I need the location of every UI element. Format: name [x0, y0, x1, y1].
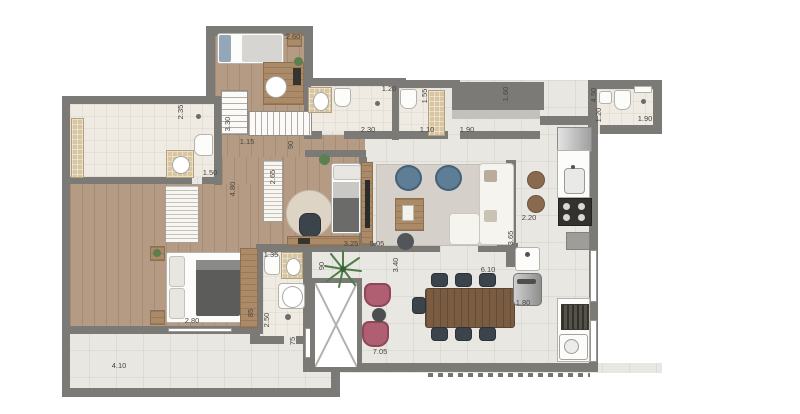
wall: [62, 388, 339, 397]
sofa-cushion: [484, 170, 497, 182]
shower-drain: [375, 101, 380, 106]
dim-label: 85: [247, 300, 255, 326]
bed-blanket-fold: [196, 260, 240, 270]
table-object: [402, 205, 414, 221]
burner: [578, 214, 585, 221]
sink: [172, 156, 190, 174]
shelf: [634, 86, 652, 93]
dim-label: 4.10: [106, 362, 132, 370]
nightstand: [150, 310, 165, 325]
x-cross-icon: [315, 283, 357, 367]
wall: [206, 26, 215, 104]
burner: [578, 203, 585, 210]
dim-label: 1.10: [414, 126, 440, 134]
dining-chair: [479, 273, 496, 287]
dim-label: 1.35: [258, 251, 284, 259]
staircase: [248, 111, 312, 136]
bed-pillow: [333, 165, 361, 180]
bed-blanket: [242, 35, 282, 62]
desk-chair: [265, 76, 287, 98]
window: [590, 320, 597, 362]
sofa-cushion: [484, 210, 497, 222]
faucet: [525, 252, 530, 257]
dim-label: 2.20: [516, 214, 542, 222]
floor-plan: 2.60 2.35 3.30 1.15 90 1.50 4.80 2.65 1.…: [0, 0, 800, 414]
dim-label: 1.20: [376, 85, 402, 93]
dim-label: 1.20: [595, 102, 603, 128]
wall: [305, 150, 366, 157]
wall: [355, 363, 598, 372]
palm-plant: [322, 248, 364, 290]
shower-head: [285, 314, 291, 320]
bar-stool: [527, 171, 545, 189]
prep-sink: [515, 247, 540, 271]
dim-label: 90: [318, 253, 326, 279]
dim-label: 4.80: [229, 176, 237, 202]
outside-area: [662, 80, 800, 134]
toilet: [194, 134, 213, 156]
dim-label: 3.25: [338, 240, 364, 248]
dim-label: 1.50: [197, 169, 223, 177]
dim-label: 1.80: [510, 299, 536, 307]
dim-label: 7.05: [367, 348, 393, 356]
laptop: [298, 238, 310, 244]
shower-head: [196, 114, 201, 119]
dim-label: 1.90: [454, 126, 480, 134]
outside-area: [0, 96, 62, 414]
burner: [563, 214, 570, 221]
projection-dashes: [428, 373, 590, 377]
pouf: [397, 233, 414, 250]
entry-wall-mass: [452, 82, 544, 110]
plant: [294, 57, 303, 66]
dining-chair: [431, 273, 448, 287]
desk-chair: [299, 213, 321, 237]
dim-label: 1.60: [502, 81, 510, 107]
grill-lid: [517, 279, 536, 284]
wall: [398, 80, 460, 88]
outside-area: [598, 134, 800, 363]
wall: [331, 372, 340, 397]
wall: [70, 177, 192, 184]
dim-label: 2.35: [177, 99, 185, 125]
shower-head: [641, 99, 646, 104]
outside-area: [0, 397, 800, 414]
sink: [313, 92, 329, 111]
toilet: [334, 88, 351, 107]
bar-stool: [527, 195, 545, 213]
burner: [563, 203, 570, 210]
dining-table: [425, 288, 515, 328]
bed-pillow: [219, 35, 231, 62]
dining-chair: [412, 297, 426, 314]
dim-label: 3.30: [224, 111, 232, 137]
dining-chair: [479, 327, 496, 341]
cooktop: [558, 198, 592, 226]
side-table: [372, 308, 386, 322]
lounge-chair: [362, 321, 389, 347]
tv: [365, 180, 370, 228]
dim-label: 1.55: [421, 83, 429, 109]
dim-label: 2.80: [179, 317, 205, 325]
lounge-chair: [364, 283, 391, 307]
wardrobe: [165, 185, 199, 243]
wall: [600, 125, 662, 134]
tiled-wall-strip: [71, 118, 84, 178]
dim-label: 5.05: [364, 240, 390, 248]
tub-basin: [564, 339, 579, 354]
bathtub-basin: [282, 286, 303, 308]
plant: [319, 154, 330, 165]
wall: [202, 177, 214, 184]
armchair: [435, 165, 462, 191]
dim-label: 2.65: [269, 164, 277, 190]
outside-area: [313, 0, 800, 80]
armchair: [395, 165, 422, 191]
toilet: [400, 89, 417, 109]
monitor: [293, 68, 301, 85]
toilet: [614, 90, 631, 110]
dining-chair: [431, 327, 448, 341]
sofa-chaise: [449, 213, 480, 245]
entry-ledge: [452, 110, 540, 119]
dim-label: 75: [289, 328, 297, 354]
outside-area: [0, 0, 206, 96]
fridge: [557, 127, 592, 152]
bed-blanket: [333, 198, 359, 232]
plant: [153, 249, 161, 257]
bed-pillow: [169, 256, 185, 287]
dim-label: 2.30: [355, 126, 381, 134]
wall: [258, 336, 284, 344]
dim-label: 2.50: [263, 307, 271, 333]
dim-label: 1.15: [234, 138, 260, 146]
dim-label: 3.40: [392, 252, 400, 278]
dim-label: 3.65: [507, 225, 515, 251]
shaft: [310, 278, 362, 372]
dim-label: 2.60: [280, 33, 306, 41]
closet-hall-floor: [70, 184, 254, 244]
dining-chair: [455, 327, 472, 341]
sink: [286, 258, 301, 276]
window: [590, 250, 597, 302]
wall: [62, 96, 214, 104]
dining-chair: [455, 273, 472, 287]
faucet: [571, 165, 575, 169]
dim-label: 6.10: [475, 266, 501, 274]
oven: [561, 304, 589, 330]
dim-label: 90: [287, 132, 295, 158]
kitchen-sink: [564, 168, 585, 194]
dishwasher: [566, 232, 590, 250]
bed-pillow: [169, 288, 185, 319]
window: [168, 328, 232, 332]
outside-area: [206, 0, 316, 26]
wall: [62, 96, 70, 397]
dim-label: 1.90: [632, 115, 658, 123]
